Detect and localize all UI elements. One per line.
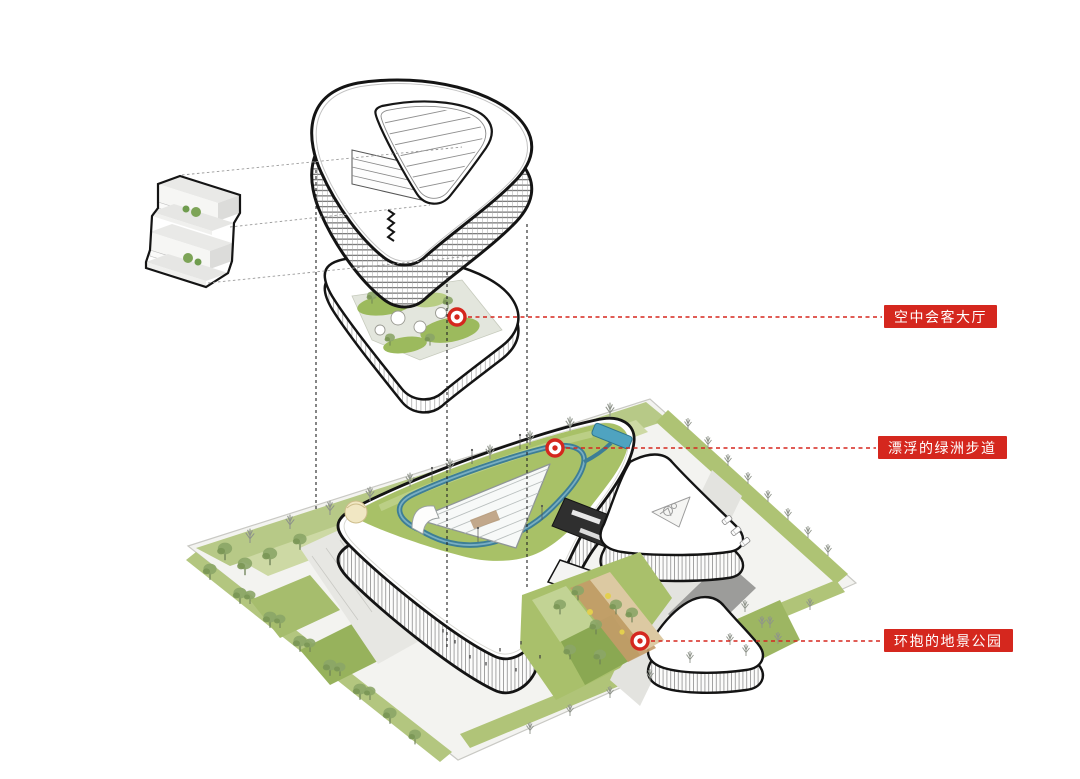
axonometric-diagram [0, 0, 1080, 779]
callout-marker-landscape-park [632, 633, 648, 649]
callout-marker-oasis-walkway [547, 440, 563, 456]
callout-label-sky-lounge: 空中会客大厅 [884, 305, 997, 328]
callout-label-landscape-park: 环抱的地景公园 [884, 629, 1013, 652]
site-plan [186, 399, 856, 762]
callout-label-oasis-walkway: 漂浮的绿洲步道 [878, 436, 1007, 459]
callout-marker-sky-lounge [449, 309, 465, 325]
floor-plate-detail [146, 176, 240, 287]
dome-canopy [345, 501, 367, 523]
architecture-diagram-page: 空中会客大厅 漂浮的绿洲步道 环抱的地景公园 [0, 0, 1080, 779]
